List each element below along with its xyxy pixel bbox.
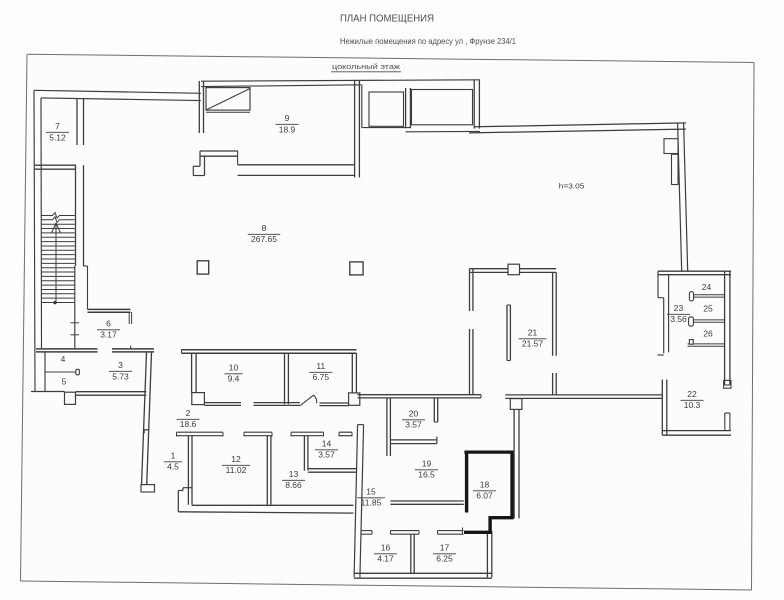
svg-text:17: 17	[440, 543, 450, 553]
svg-text:19: 19	[422, 459, 432, 469]
svg-text:цокольный этаж: цокольный этаж	[332, 62, 400, 71]
svg-text:6.25: 6.25	[436, 554, 453, 564]
svg-text:21.57: 21.57	[522, 339, 544, 349]
svg-text:2: 2	[186, 408, 191, 418]
svg-text:4.17: 4.17	[377, 554, 394, 564]
svg-text:18.9: 18.9	[279, 125, 296, 135]
svg-text:4: 4	[61, 354, 66, 364]
svg-text:18.6: 18.6	[180, 419, 197, 429]
svg-text:267.65: 267.65	[251, 234, 277, 244]
svg-text:16: 16	[381, 543, 391, 553]
svg-text:5.12: 5.12	[49, 133, 66, 143]
svg-text:18: 18	[480, 480, 490, 490]
svg-text:6: 6	[106, 319, 111, 329]
svg-text:3: 3	[118, 360, 123, 370]
svg-text:11.02: 11.02	[226, 465, 247, 475]
svg-text:20: 20	[409, 409, 419, 419]
svg-text:1: 1	[171, 451, 176, 461]
svg-text:Нежилые помещения по адресу ул: Нежилые помещения по адресу ул , Фрунзе …	[340, 37, 516, 46]
svg-text:4.5: 4.5	[167, 462, 179, 472]
svg-text:10.3: 10.3	[684, 400, 701, 410]
svg-text:h=3.05: h=3.05	[559, 181, 585, 190]
svg-text:21: 21	[528, 328, 538, 338]
svg-text:10: 10	[229, 363, 239, 373]
svg-text:24: 24	[702, 282, 712, 292]
svg-text:15: 15	[366, 487, 376, 497]
svg-text:5: 5	[62, 377, 67, 387]
svg-text:11: 11	[316, 361, 325, 371]
svg-text:13: 13	[289, 469, 299, 479]
svg-text:6.07: 6.07	[476, 491, 493, 501]
svg-text:23: 23	[674, 303, 684, 313]
svg-text:ПЛАН ПОМЕЩЕНИЯ: ПЛАН ПОМЕЩЕНИЯ	[340, 14, 434, 25]
svg-text:9.4: 9.4	[228, 374, 240, 384]
svg-text:14: 14	[322, 439, 332, 449]
svg-text:3.56: 3.56	[670, 314, 687, 324]
svg-text:26: 26	[703, 329, 713, 339]
svg-text:7: 7	[55, 121, 60, 131]
svg-text:12: 12	[231, 454, 241, 464]
svg-text:16.5: 16.5	[418, 470, 435, 480]
svg-text:8.66: 8.66	[285, 480, 302, 490]
svg-text:6.75: 6.75	[313, 372, 330, 382]
svg-text:25: 25	[703, 304, 713, 314]
svg-text:22: 22	[687, 389, 697, 399]
svg-text:3.57: 3.57	[318, 450, 335, 460]
svg-text:3.17: 3.17	[100, 330, 117, 340]
svg-text:8: 8	[262, 223, 267, 233]
svg-text:11.85: 11.85	[361, 498, 382, 508]
svg-text:5.73: 5.73	[112, 372, 129, 382]
svg-text:3.57: 3.57	[405, 420, 422, 430]
svg-text:9: 9	[285, 113, 290, 123]
